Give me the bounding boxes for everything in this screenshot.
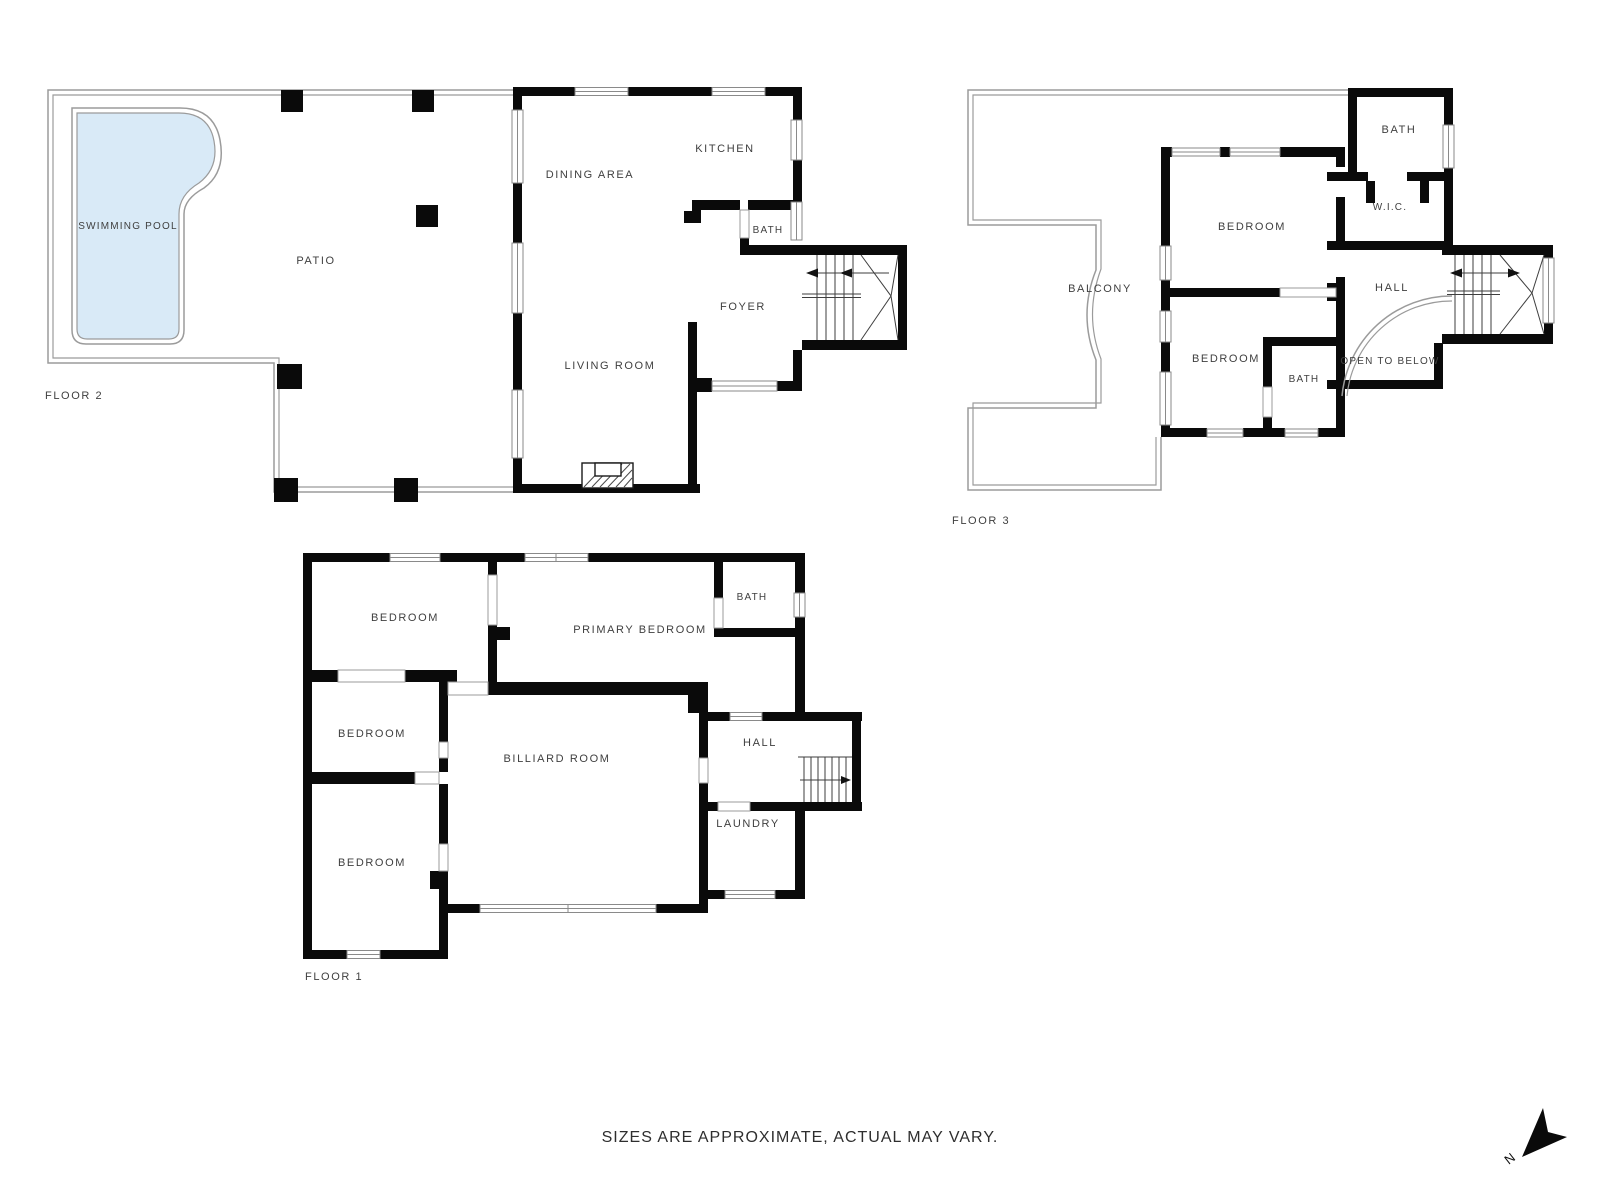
floorplan-canvas: PATIO SWIMMING POOL DINING AREA KITCHEN … bbox=[0, 0, 1600, 1200]
floorplan-page: PATIO SWIMMING POOL DINING AREA KITCHEN … bbox=[0, 0, 1600, 1200]
room-label-hall-f3: HALL bbox=[1375, 282, 1409, 294]
room-label-bedroom-upper-f3: BEDROOM bbox=[1218, 221, 1286, 233]
room-label-hall-f1: HALL bbox=[743, 737, 777, 749]
room-label-dining-area: DINING AREA bbox=[546, 169, 635, 181]
room-label-swimming-pool: SWIMMING POOL bbox=[78, 221, 178, 232]
patio-pillars bbox=[274, 90, 438, 502]
disclaimer-text: SIZES ARE APPROXIMATE, ACTUAL MAY VARY. bbox=[602, 1129, 999, 1146]
compass-n-label: N bbox=[1501, 1150, 1518, 1168]
room-label-bath-lower-f3: BATH bbox=[1289, 374, 1320, 385]
room-label-bedroom-top-f1: BEDROOM bbox=[371, 612, 439, 624]
floor1-plan: BEDROOM PRIMARY BEDROOM BATH BEDROOM BIL… bbox=[303, 553, 862, 983]
room-label-bedroom-middle-f1: BEDROOM bbox=[338, 728, 406, 740]
floor1-stairs bbox=[798, 757, 852, 802]
compass-icon: N bbox=[1501, 1108, 1567, 1167]
fireplace bbox=[582, 463, 633, 488]
floor2-stairs bbox=[802, 255, 898, 340]
room-label-patio: PATIO bbox=[296, 255, 335, 267]
floor2-windows bbox=[512, 88, 802, 459]
room-label-kitchen: KITCHEN bbox=[695, 143, 754, 155]
room-label-foyer: FOYER bbox=[720, 301, 766, 313]
floor2-plan: PATIO SWIMMING POOL DINING AREA KITCHEN … bbox=[45, 87, 907, 502]
room-label-bath-f2: BATH bbox=[753, 225, 784, 236]
stair-arrow-icon bbox=[840, 269, 852, 278]
room-label-balcony: BALCONY bbox=[1068, 283, 1132, 295]
room-label-bath-upper-f3: BATH bbox=[1382, 124, 1417, 136]
compass-north-arrow bbox=[1522, 1108, 1567, 1157]
floor3-plan: BATH W.I.C. BEDROOM BALCONY HALL BEDROOM… bbox=[952, 88, 1554, 527]
stair-arrow-icon bbox=[806, 269, 818, 278]
floor2-label: FLOOR 2 bbox=[45, 390, 103, 402]
floor3-walls bbox=[1161, 88, 1553, 437]
stair-arrow-icon bbox=[1450, 269, 1462, 278]
floor3-label: FLOOR 3 bbox=[952, 515, 1010, 527]
floor3-stairs bbox=[1447, 255, 1544, 334]
floor1-label: FLOOR 1 bbox=[305, 971, 363, 983]
room-label-billiard-room: BILLIARD ROOM bbox=[504, 753, 611, 765]
room-label-laundry: LAUNDRY bbox=[716, 818, 780, 830]
room-label-bath-f1: BATH bbox=[737, 592, 768, 603]
room-label-open-to-below: OPEN TO BELOW bbox=[1340, 356, 1439, 367]
room-label-bedroom-bottom-f1: BEDROOM bbox=[338, 857, 406, 869]
room-label-primary-bedroom: PRIMARY BEDROOM bbox=[573, 624, 707, 636]
room-label-living-room: LIVING ROOM bbox=[565, 360, 656, 372]
room-label-bedroom-lower-f3: BEDROOM bbox=[1192, 353, 1260, 365]
room-label-wic: W.I.C. bbox=[1373, 202, 1407, 213]
